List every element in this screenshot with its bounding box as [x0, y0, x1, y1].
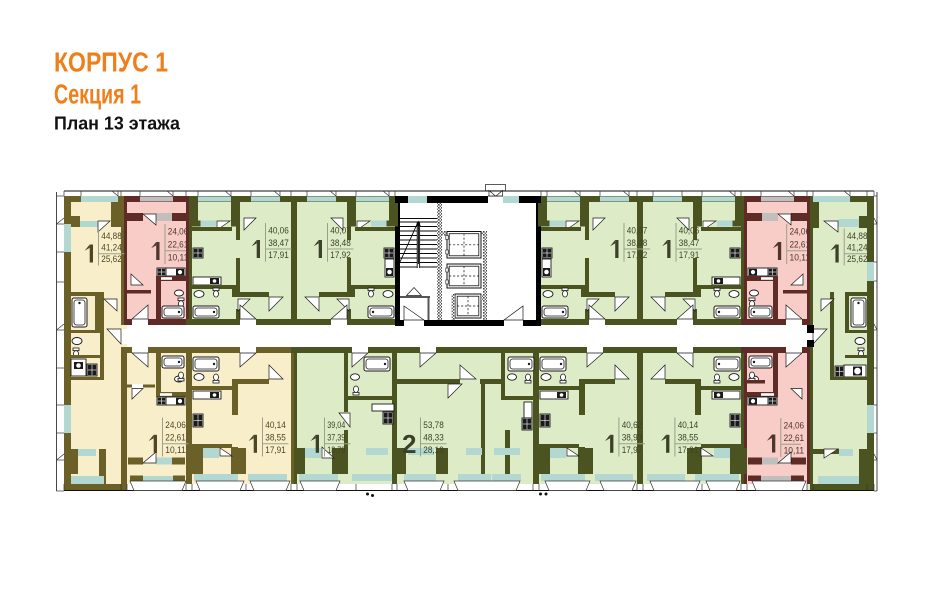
- svg-text:17,97: 17,97: [622, 444, 643, 455]
- svg-text:40,06: 40,06: [679, 225, 700, 236]
- svg-text:24,06: 24,06: [790, 226, 811, 237]
- svg-text:25,62: 25,62: [101, 253, 122, 264]
- svg-text:22,61: 22,61: [784, 432, 805, 443]
- svg-text:38,47: 38,47: [679, 237, 700, 248]
- svg-text:38,48: 38,48: [330, 237, 351, 248]
- svg-text:22,61: 22,61: [168, 239, 189, 250]
- svg-text:48,33: 48,33: [423, 432, 444, 443]
- svg-text:40,14: 40,14: [265, 419, 286, 430]
- svg-text:44,88: 44,88: [847, 230, 868, 241]
- svg-text:38,93: 38,93: [622, 432, 643, 443]
- svg-text:37,39: 37,39: [327, 432, 345, 443]
- svg-text:24,06: 24,06: [165, 419, 186, 430]
- svg-text:22,61: 22,61: [790, 239, 811, 250]
- svg-text:10,11: 10,11: [165, 444, 186, 455]
- svg-text:40,06: 40,06: [268, 225, 289, 236]
- svg-text:10,11: 10,11: [790, 252, 811, 263]
- svg-text:22,61: 22,61: [165, 432, 186, 443]
- svg-text:53,78: 53,78: [423, 419, 444, 430]
- svg-text:Секция 1: Секция 1: [54, 79, 141, 110]
- svg-text:План 13 этажа: План 13 этажа: [54, 113, 181, 134]
- svg-text:40,07: 40,07: [330, 225, 351, 236]
- svg-text:17,91: 17,91: [679, 249, 700, 260]
- svg-text:17,91: 17,91: [268, 249, 289, 260]
- svg-text:40,07: 40,07: [627, 225, 648, 236]
- svg-text:39,04: 39,04: [327, 419, 345, 430]
- svg-text:24,06: 24,06: [784, 420, 805, 431]
- svg-text:17,91: 17,91: [678, 444, 699, 455]
- svg-text:41,24: 41,24: [101, 242, 122, 253]
- svg-text:КОРПУС 1: КОРПУС 1: [54, 47, 168, 78]
- svg-text:2: 2: [402, 431, 417, 459]
- svg-text:17,91: 17,91: [265, 444, 286, 455]
- svg-text:17,92: 17,92: [627, 249, 648, 260]
- svg-text:28,19: 28,19: [423, 444, 444, 455]
- svg-text:38,55: 38,55: [265, 432, 286, 443]
- svg-text:44,88: 44,88: [101, 230, 122, 241]
- svg-text:38,47: 38,47: [268, 237, 289, 248]
- svg-text:38,55: 38,55: [678, 432, 699, 443]
- svg-text:40,62: 40,62: [622, 419, 643, 430]
- svg-text:18,79: 18,79: [327, 444, 345, 455]
- svg-text:38,48: 38,48: [627, 237, 648, 248]
- svg-text:41,24: 41,24: [847, 242, 868, 253]
- svg-text:40,14: 40,14: [678, 419, 699, 430]
- svg-text:10,11: 10,11: [168, 252, 189, 263]
- svg-text:10,11: 10,11: [784, 445, 805, 456]
- svg-text:24,06: 24,06: [168, 226, 189, 237]
- svg-text:17,92: 17,92: [330, 249, 351, 260]
- svg-text:25,62: 25,62: [847, 253, 868, 264]
